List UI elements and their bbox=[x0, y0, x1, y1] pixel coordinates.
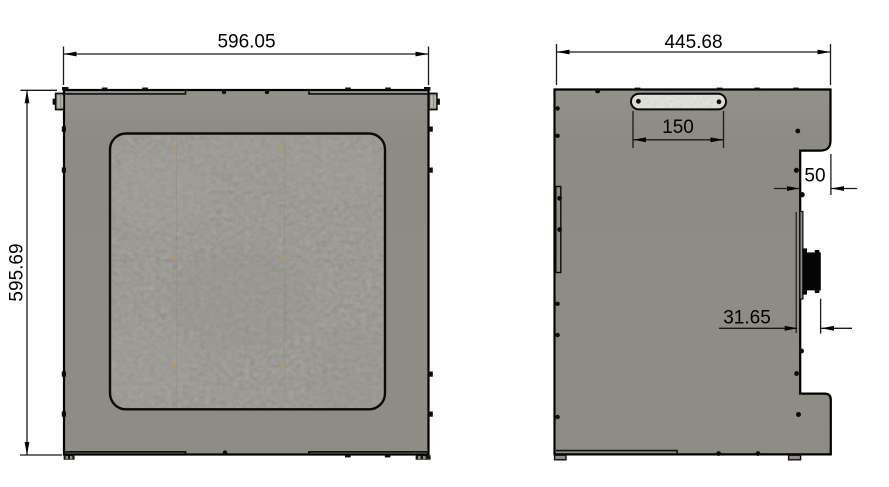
svg-text:595.69: 595.69 bbox=[7, 243, 28, 301]
svg-text:50: 50 bbox=[804, 166, 825, 187]
svg-text:31.65: 31.65 bbox=[723, 308, 771, 329]
svg-text:445.68: 445.68 bbox=[664, 32, 722, 53]
svg-text:596.05: 596.05 bbox=[217, 32, 275, 53]
svg-text:150: 150 bbox=[662, 117, 694, 138]
